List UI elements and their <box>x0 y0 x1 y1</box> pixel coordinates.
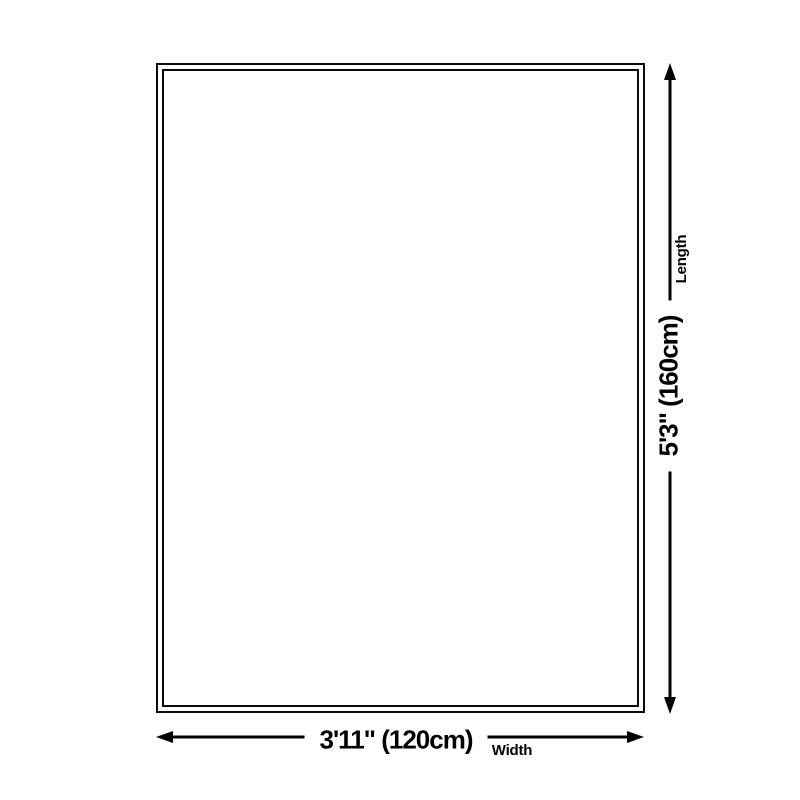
length-measurement: 5'3" (160cm) <box>651 301 686 472</box>
arrow-right-icon <box>627 731 644 743</box>
width-label: Width <box>492 742 533 760</box>
size-diagram: 5'3" (160cm) Length 3'11" (120cm) Width <box>0 0 800 800</box>
arrow-left-icon <box>156 731 173 743</box>
arrow-up-icon <box>664 63 676 80</box>
arrow-down-icon <box>664 697 676 714</box>
length-label: Length <box>673 235 691 284</box>
width-measurement: 3'11" (120cm) <box>305 722 488 757</box>
